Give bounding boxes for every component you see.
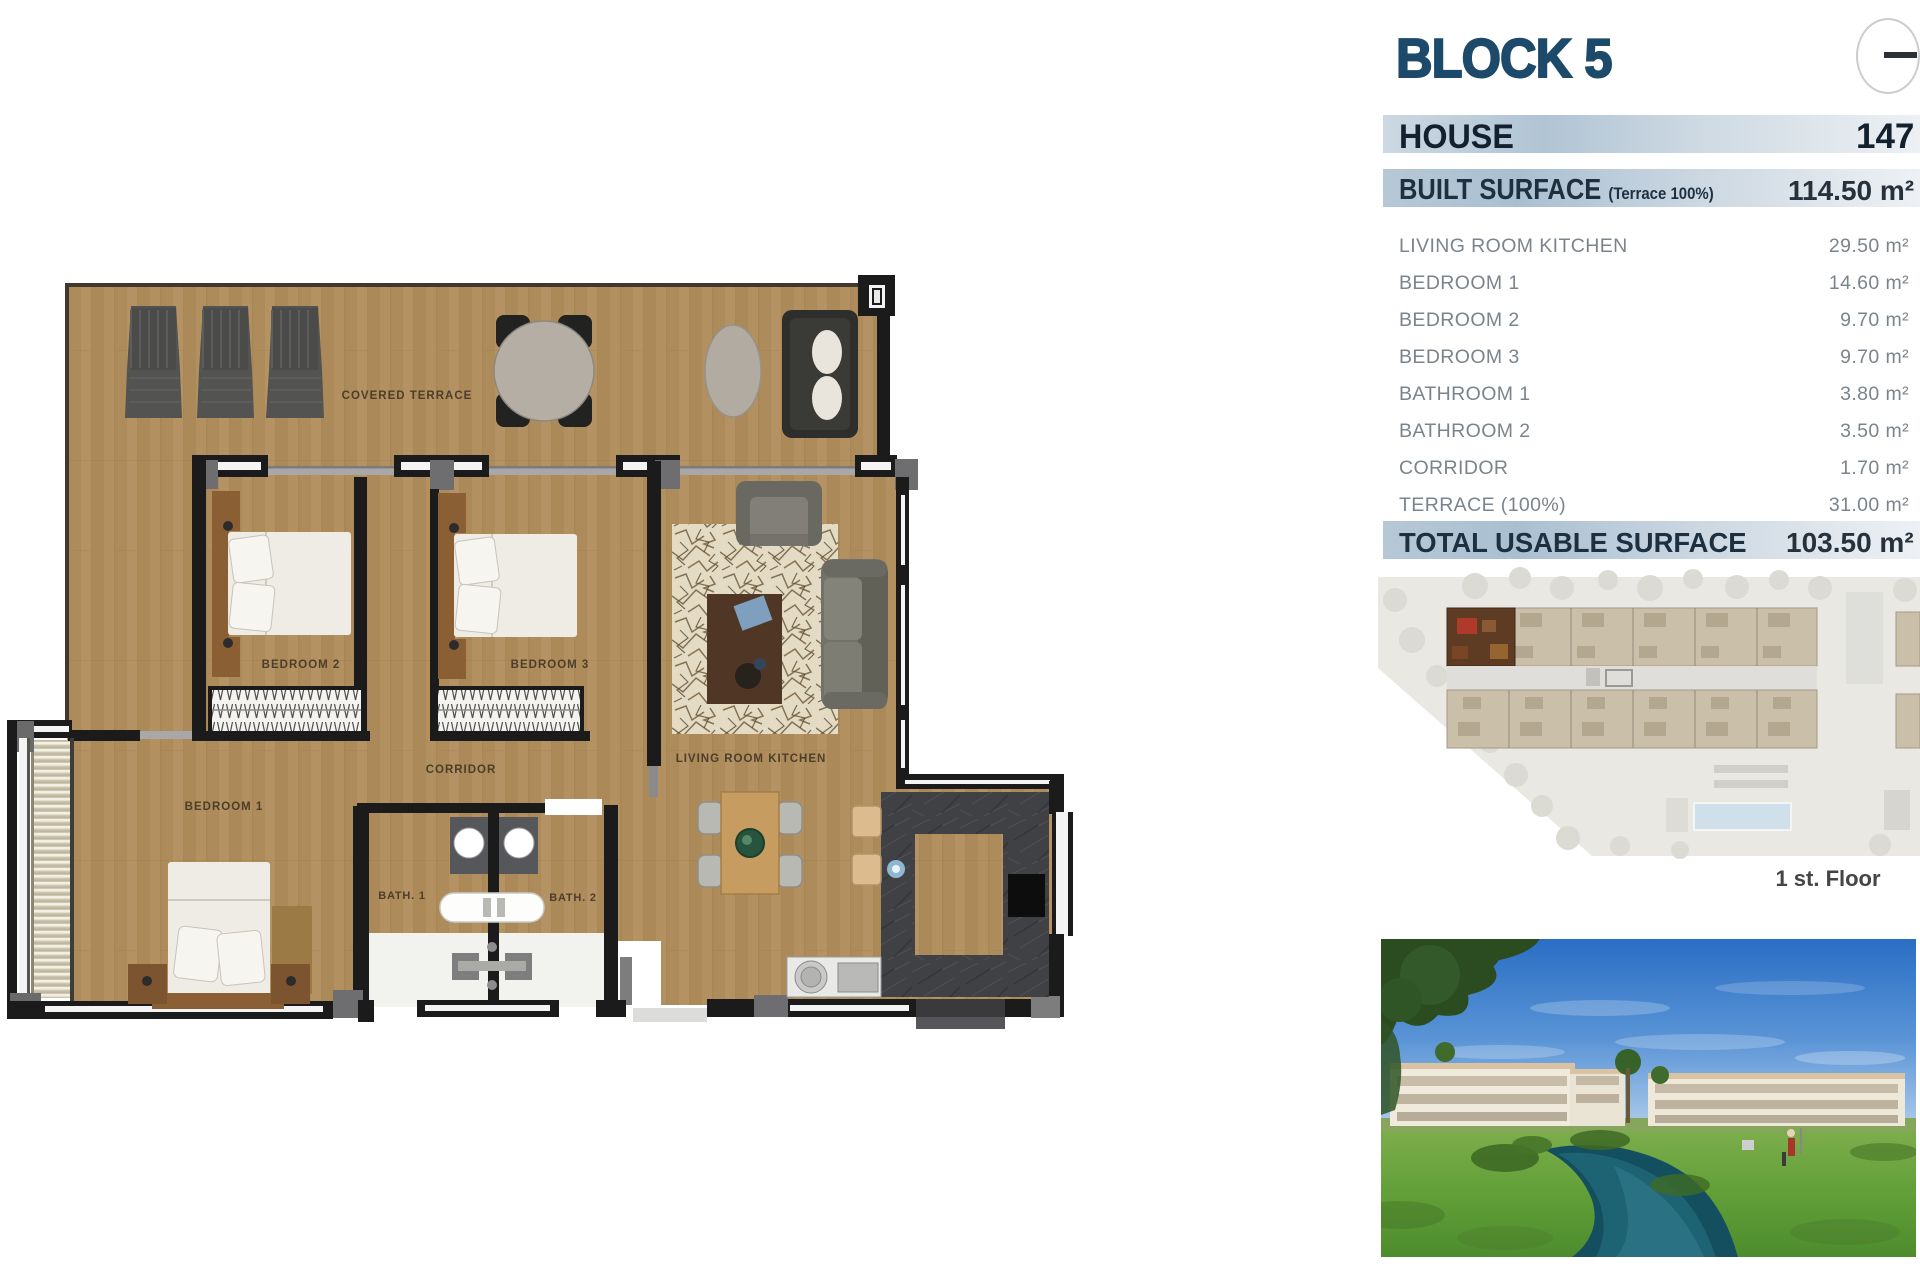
- svg-text:BATH. 2: BATH. 2: [549, 892, 597, 904]
- svg-text:BEDROOM 2: BEDROOM 2: [262, 659, 341, 671]
- svg-text:CORRIDOR: CORRIDOR: [426, 764, 497, 776]
- svg-text:BEDROOM 3: BEDROOM 3: [511, 659, 590, 671]
- svg-text:LIVING ROOM KITCHEN: LIVING ROOM KITCHEN: [676, 753, 827, 765]
- svg-text:COVERED TERRACE: COVERED TERRACE: [342, 390, 473, 402]
- svg-text:1 st. Floor: 1 st. Floor: [1775, 866, 1881, 891]
- svg-text:BATH. 1: BATH. 1: [378, 890, 426, 902]
- svg-text:BEDROOM 1: BEDROOM 1: [185, 801, 264, 813]
